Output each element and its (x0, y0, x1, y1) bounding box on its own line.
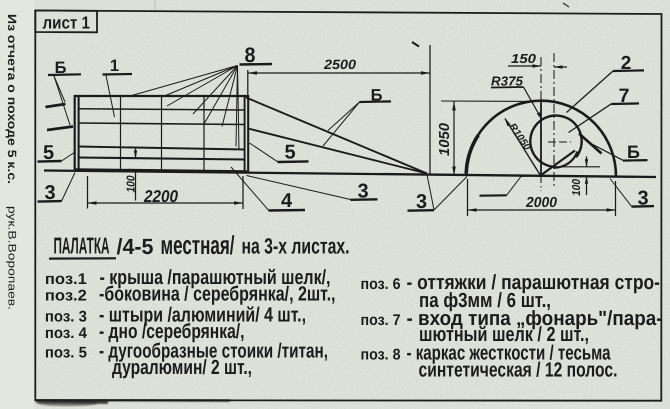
svg-text:на 3-х листах.: на 3-х листах. (242, 234, 350, 259)
svg-text:синтетическая / 12 полос.: синтетическая / 12 полос. (419, 359, 618, 382)
svg-text:лист 1: лист 1 (43, 13, 91, 33)
svg-text:поз. 7: поз. 7 (361, 312, 401, 329)
svg-text:/4-5: /4-5 (117, 234, 154, 259)
svg-text:1050: 1050 (437, 123, 453, 156)
svg-text:дуралюмин/ 2 шт.,: дуралюмин/ 2 шт., (112, 356, 252, 379)
svg-text:ПАЛАТКА: ПАЛАТКА (54, 233, 110, 259)
svg-text:2500: 2500 (323, 57, 357, 72)
svg-text:поз.2: поз.2 (45, 288, 87, 305)
svg-text:рук.В.Воропаев.: рук.В.Воропаев. (6, 206, 18, 310)
svg-text:1: 1 (110, 57, 119, 75)
svg-text:Из отчета о походе 5 к.с.: Из отчета о походе 5 к.с. (5, 14, 19, 184)
svg-text:поз. 5: поз. 5 (45, 345, 87, 362)
svg-text:поз.1: поз.1 (45, 271, 87, 288)
svg-text:2200: 2200 (143, 187, 178, 206)
svg-text:150: 150 (511, 51, 537, 66)
svg-text:100: 100 (126, 175, 138, 193)
svg-text:поз. 3: поз. 3 (45, 309, 87, 326)
svg-text:-боковина / серебрянка/, 2шт.,: -боковина / серебрянка/, 2шт., (99, 283, 336, 306)
svg-text:поз. 8: поз. 8 (361, 347, 401, 364)
svg-text:100: 100 (571, 178, 583, 196)
svg-text:местная/: местная/ (161, 230, 235, 260)
svg-text:4: 4 (281, 190, 293, 212)
svg-text:5: 5 (284, 142, 295, 164)
svg-text:поз. 6: поз. 6 (361, 276, 401, 293)
svg-text:Б: Б (627, 142, 640, 162)
svg-text:поз. 4: поз. 4 (45, 325, 87, 342)
svg-text:2000: 2000 (525, 195, 557, 211)
